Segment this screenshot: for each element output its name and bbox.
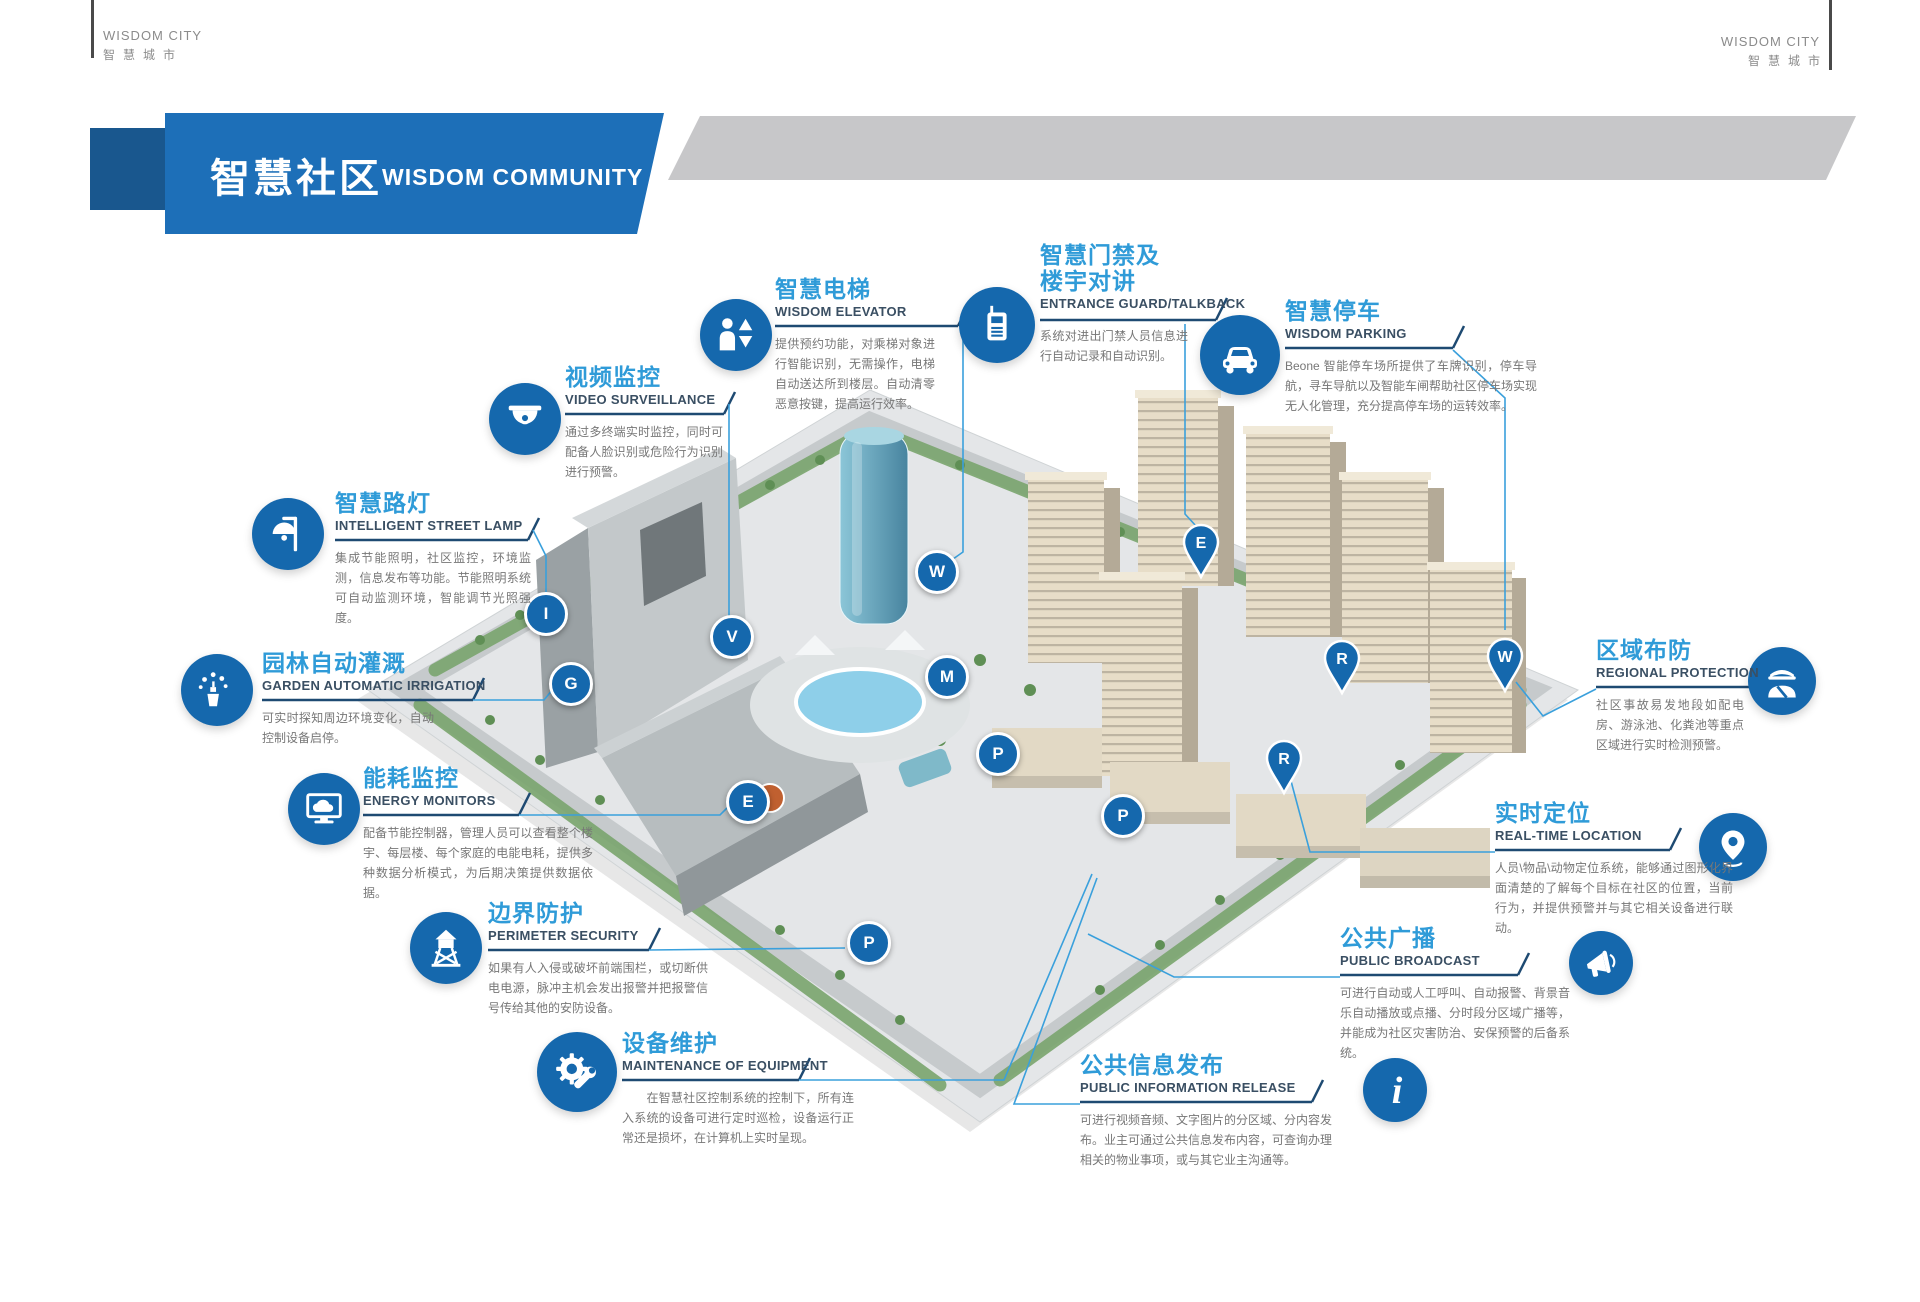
callout-body: 配备节能控制器，管理人员可以查看整个楼宇、每层楼、每个家庭的电能电耗，提供多种数… <box>363 823 593 903</box>
callout-title: 设备维护 <box>622 1030 854 1056</box>
callout-body: 通过多终端实时监控，同时可配备人脸识别或危险行为识别进行预警。 <box>565 422 723 482</box>
callout-subtitle: ENERGY MONITORS <box>363 793 593 809</box>
map-marker-circle: E <box>726 780 770 824</box>
callout-subtitle: INTELLIGENT STREET LAMP <box>335 518 531 534</box>
callout-title: 园林自动灌溉 <box>262 650 486 676</box>
callout-subtitle: WISDOM PARKING <box>1285 326 1537 342</box>
banner-title-en: WISDOM COMMUNITY <box>382 164 643 191</box>
brand-right: WISDOM CITY 智慧城市 <box>1690 34 1820 69</box>
callout-subtitle: MAINTENANCE OF EQUIPMENT <box>622 1058 854 1074</box>
gear-wrench-icon <box>537 1032 617 1112</box>
callout-body: 系统对进出门禁人员信息进行自动记录和自动识别。 <box>1040 326 1188 366</box>
callout-body: 可进行视频音频、文字图片的分区域、分内容发布。业主可通过公共信息发布内容，可查询… <box>1080 1110 1332 1170</box>
callout-subtitle: PERIMETER SECURITY <box>488 928 708 944</box>
marker-letter: G <box>564 674 577 694</box>
map-marker-circle: P <box>847 921 891 965</box>
callout-subtitle: REGIONAL PROTECTION <box>1596 665 1759 681</box>
callout-body: 在智慧社区控制系统的控制下，所有连入系统的设备可进行定时巡检，设备运行正常还是损… <box>622 1088 854 1148</box>
map-marker-circle: M <box>925 655 969 699</box>
callout-perimeter-security: 边界防护 PERIMETER SECURITY 如果有人入侵或破坏前端围栏，或切… <box>488 900 708 1018</box>
callout-title: 实时定位 <box>1495 800 1733 826</box>
marker-letter: I <box>544 604 549 624</box>
callout-title: 边界防护 <box>488 900 708 926</box>
map-marker-circle: P <box>1101 794 1145 838</box>
callout-title: 智慧门禁及 楼宇对讲 <box>1040 242 1245 294</box>
callout-public-broadcast: 公共广播 PUBLIC BROADCAST 可进行自动或人工呼叫、自动报警、背景… <box>1340 925 1570 1063</box>
callout-wisdom-elevator: 智慧电梯 WISDOM ELEVATOR 提供预约功能，对乘梯对象进行智能识别，… <box>775 276 935 414</box>
marker-letter: P <box>1117 806 1128 826</box>
callout-title: 公共信息发布 <box>1080 1052 1332 1078</box>
callout-title: 智慧停车 <box>1285 298 1537 324</box>
dome-camera-icon <box>489 383 561 455</box>
callout-public-information: 公共信息发布 PUBLIC INFORMATION RELEASE 可进行视频音… <box>1080 1052 1332 1170</box>
callout-realtime-location: 实时定位 REAL-TIME LOCATION 人员\物品\动物定位系统，能够通… <box>1495 800 1733 938</box>
callout-wisdom-parking: 智慧停车 WISDOM PARKING Beone 智能停车场所提供了车牌识别，… <box>1285 298 1537 416</box>
watchtower-icon <box>410 912 482 984</box>
callout-body: 社区事故易发地段如配电房、游泳池、化粪池等重点区域进行实时检测预警。 <box>1596 695 1744 755</box>
callout-subtitle: WISDOM ELEVATOR <box>775 304 935 320</box>
svg-text:i: i <box>1392 1070 1403 1112</box>
callout-subtitle: ENTRANCE GUARD/TALKBACK <box>1040 296 1245 312</box>
brand-right-cn: 智慧城市 <box>1690 52 1828 69</box>
brand-right-en: WISDOM CITY <box>1690 34 1820 49</box>
marker-letter: E <box>742 792 753 812</box>
marker-letter: R <box>1278 751 1290 768</box>
callout-subtitle: PUBLIC BROADCAST <box>1340 953 1570 969</box>
header-right-divider <box>1829 0 1832 70</box>
callout-regional-protection: 区域布防 REGIONAL PROTECTION 社区事故易发地段如配电房、游泳… <box>1596 637 1759 755</box>
marker-letter: E <box>1196 535 1207 552</box>
info-icon: i <box>1363 1058 1427 1122</box>
monitor-cloud-icon <box>288 773 360 845</box>
map-marker-pin: W <box>1483 636 1527 696</box>
callout-title: 能耗监控 <box>363 765 593 791</box>
callout-energy-monitors: 能耗监控 ENERGY MONITORS 配备节能控制器，管理人员可以查看整个楼… <box>363 765 593 903</box>
map-marker-pin: R <box>1262 738 1306 798</box>
header-left-divider <box>91 0 94 58</box>
map-marker-circle: W <box>915 550 959 594</box>
marker-letter: W <box>929 562 945 582</box>
banner-title-cn: 智慧社区 <box>210 146 382 204</box>
map-marker-pin: R <box>1320 638 1364 698</box>
map-marker-circle: V <box>710 615 754 659</box>
callout-street-lamp: 智慧路灯 INTELLIGENT STREET LAMP 集成节能照明，社区监控… <box>335 490 531 628</box>
callout-entrance-guard: 智慧门禁及 楼宇对讲 ENTRANCE GUARD/TALKBACK 系统对进出… <box>1040 242 1245 366</box>
wisdom-community-poster: WISDOM CITY 智慧城市 WISDOM CITY 智慧城市 智慧社区 W… <box>0 0 1920 1302</box>
map-marker-circle: G <box>549 662 593 706</box>
brand-left-en: WISDOM CITY <box>103 28 202 43</box>
callout-body: 集成节能照明，社区监控，环境监测，信息发布等功能。节能照明系统可自动监测环境，智… <box>335 548 531 628</box>
callout-title: 区域布防 <box>1596 637 1759 663</box>
street-lamp-icon <box>252 498 324 570</box>
callout-body: 可实时探知周边环境变化，自动控制设备启停。 <box>262 708 434 748</box>
callout-body: Beone 智能停车场所提供了车牌识别，停车导航，寻车导航以及智能车闸帮助社区停… <box>1285 356 1537 416</box>
callout-title: 智慧路灯 <box>335 490 531 516</box>
intercom-icon <box>959 287 1035 363</box>
callout-subtitle: PUBLIC INFORMATION RELEASE <box>1080 1080 1332 1096</box>
callout-title: 公共广播 <box>1340 925 1570 951</box>
callout-subtitle: GARDEN AUTOMATIC IRRIGATION <box>262 678 486 694</box>
callout-subtitle: VIDEO SURVEILLANCE <box>565 392 723 408</box>
brand-left: WISDOM CITY 智慧城市 <box>103 28 202 63</box>
callout-video-surveillance: 视频监控 VIDEO SURVEILLANCE 通过多终端实时监控，同时可配备人… <box>565 364 723 482</box>
marker-letter: W <box>1497 649 1513 666</box>
map-marker-pin: E <box>1179 522 1223 582</box>
elevator-icon <box>700 299 772 371</box>
marker-letter: P <box>863 933 874 953</box>
brand-left-cn: 智慧城市 <box>103 46 202 63</box>
callout-title: 视频监控 <box>565 364 723 390</box>
sprinkler-icon <box>181 654 253 726</box>
callout-body: 提供预约功能，对乘梯对象进行智能识别，无需操作，电梯自动送达所到楼层。自动清零恶… <box>775 334 935 414</box>
marker-letter: V <box>726 627 737 647</box>
callout-equipment-maintenance: 设备维护 MAINTENANCE OF EQUIPMENT 在智慧社区控制系统的… <box>622 1030 854 1148</box>
map-marker-circle: P <box>976 732 1020 776</box>
callout-garden-irrigation: 园林自动灌溉 GARDEN AUTOMATIC IRRIGATION 可实时探知… <box>262 650 486 748</box>
callout-body: 可进行自动或人工呼叫、自动报警、背景音乐自动播放或点播、分时段分区域广播等，并能… <box>1340 983 1570 1063</box>
marker-letter: P <box>992 744 1003 764</box>
callout-title: 智慧电梯 <box>775 276 935 302</box>
callout-subtitle: REAL-TIME LOCATION <box>1495 828 1733 844</box>
marker-letter: R <box>1336 651 1348 668</box>
callout-body: 如果有人入侵或破坏前端围栏，或切断供电电源，脉冲主机会发出报警并把报警信号传给其… <box>488 958 708 1018</box>
marker-letter: M <box>940 667 954 687</box>
megaphone-icon <box>1569 931 1633 995</box>
